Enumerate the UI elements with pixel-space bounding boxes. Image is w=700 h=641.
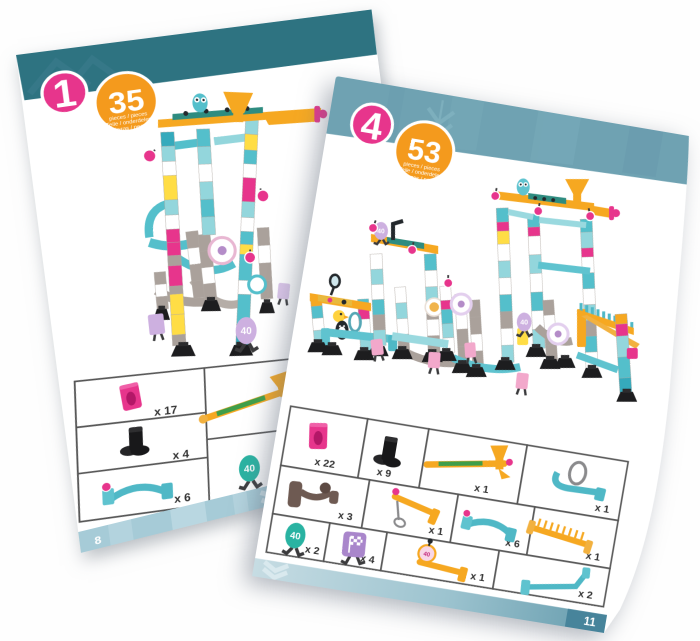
svg-text:40: 40 — [244, 463, 256, 476]
svg-text:x 1: x 1 — [594, 502, 610, 516]
svg-text:x 1: x 1 — [428, 524, 444, 538]
svg-text:x 1: x 1 — [469, 570, 485, 584]
svg-text:x 6: x 6 — [174, 490, 191, 505]
svg-text:40: 40 — [241, 326, 252, 337]
svg-text:x 2: x 2 — [304, 543, 320, 557]
svg-text:40: 40 — [289, 530, 301, 542]
svg-text:x 4: x 4 — [172, 447, 189, 462]
svg-text:x 17: x 17 — [154, 403, 178, 419]
svg-text:x 1: x 1 — [473, 482, 489, 496]
svg-text:x 3: x 3 — [337, 509, 353, 523]
svg-text:x 2: x 2 — [577, 588, 593, 602]
svg-text:x 9: x 9 — [376, 466, 392, 480]
svg-text:40: 40 — [520, 320, 528, 327]
svg-text:40: 40 — [377, 228, 385, 235]
